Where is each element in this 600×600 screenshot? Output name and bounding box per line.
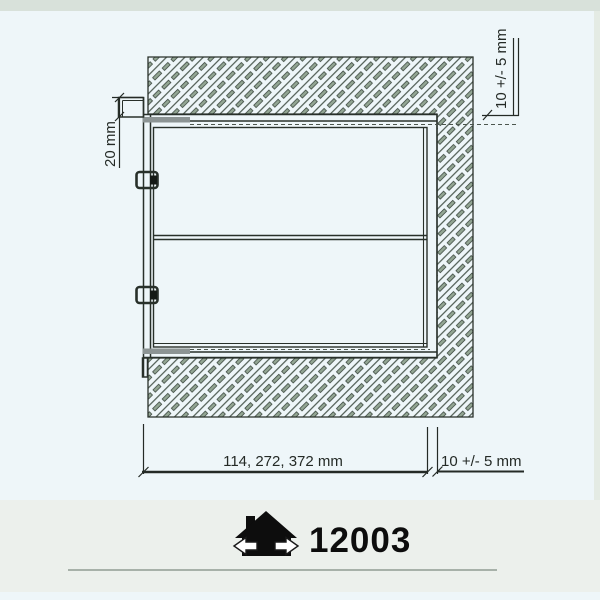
flange-depth-label: 20 mm <box>102 121 119 167</box>
side-tolerance-label: 10 +/- 5 mm <box>493 29 510 109</box>
bottom-tolerance-label: 10 +/- 5 mm <box>441 453 521 470</box>
product-number: 12003 <box>309 521 411 560</box>
house-icon <box>234 511 298 556</box>
inner-compartment <box>154 128 428 348</box>
wall-section <box>148 57 473 417</box>
bottom-stub-lip <box>143 358 148 377</box>
frame-bar-top <box>143 117 190 123</box>
technical-drawing: 20 mm 10 +/- 5 mm 114, 272, 372 mm 10 +/… <box>0 0 600 600</box>
frame-bar-bottom <box>143 349 190 355</box>
spring-clip-lower-latch <box>150 291 157 300</box>
brand-logo: 12003 <box>234 511 411 560</box>
wall-hatch <box>148 57 473 417</box>
house-roof <box>235 511 297 538</box>
installation-diagram-page: 20 mm 10 +/- 5 mm 114, 272, 372 mm 10 +/… <box>0 0 600 600</box>
spring-clip-upper-latch <box>150 176 157 185</box>
width-variants-label: 114, 272, 372 mm <box>223 453 343 470</box>
